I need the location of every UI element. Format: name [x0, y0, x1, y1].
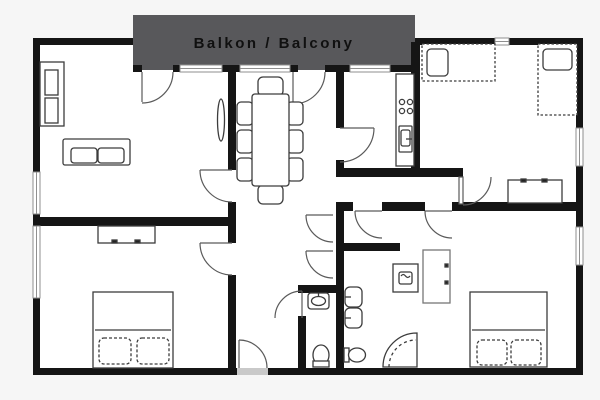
window	[33, 172, 40, 214]
bathroom-sink	[345, 308, 362, 328]
window	[180, 65, 222, 72]
pillow	[477, 340, 507, 365]
window	[495, 38, 509, 45]
chair	[237, 158, 253, 181]
desk-handle	[521, 179, 526, 182]
pillow	[99, 338, 131, 364]
dining-table	[252, 94, 289, 186]
shelf-cabinet	[40, 62, 64, 126]
pillow	[137, 338, 169, 364]
wardrobe-handle	[445, 281, 448, 284]
wardrobe	[423, 250, 450, 303]
pillow	[427, 49, 448, 76]
window	[576, 227, 583, 265]
balcony: Balkon / Balcony	[133, 15, 415, 70]
kitchen-sink	[399, 126, 412, 152]
toilet	[344, 348, 366, 362]
chair	[258, 185, 283, 204]
floor-plan-page: Balkon / Balcony	[0, 0, 600, 400]
dresser-handle	[112, 240, 117, 243]
pillow	[543, 49, 572, 70]
kitchen-unit	[396, 74, 414, 166]
sofa	[63, 139, 130, 165]
window	[240, 65, 290, 72]
floor-plan: Balkon / Balcony	[0, 0, 600, 400]
washing-machine	[393, 264, 418, 292]
bathroom-sink	[345, 287, 362, 307]
dresser	[98, 226, 155, 243]
wc-sink	[308, 293, 329, 309]
radiator	[218, 99, 225, 141]
desk	[508, 180, 562, 203]
entrance-threshold	[237, 368, 268, 375]
chair	[258, 77, 283, 96]
wc-toilet	[313, 345, 329, 367]
dresser-handle	[135, 240, 140, 243]
window	[33, 226, 40, 298]
window	[576, 128, 583, 166]
wardrobe-handle	[445, 264, 448, 267]
desk-handle	[542, 179, 547, 182]
pillow	[511, 340, 541, 365]
chair	[237, 130, 253, 153]
chair	[237, 102, 253, 125]
balcony-label: Balkon / Balcony	[194, 35, 355, 52]
window	[350, 65, 390, 72]
